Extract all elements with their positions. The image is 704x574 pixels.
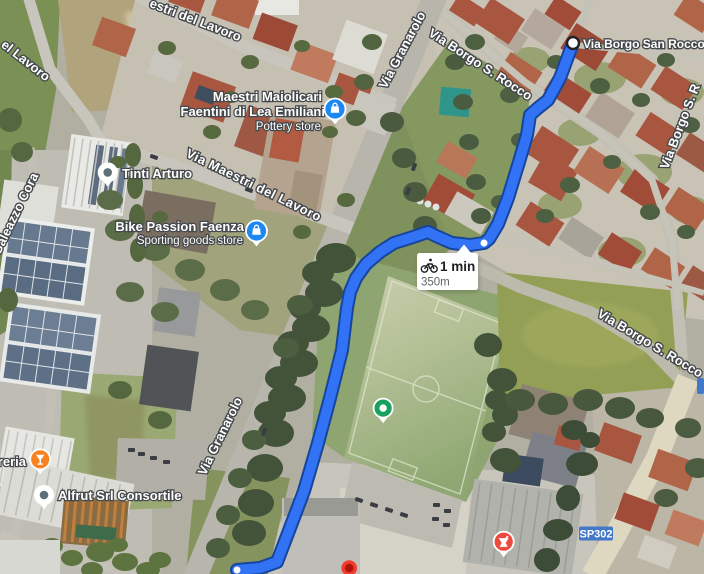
svg-text:Tinti Arturo: Tinti Arturo [122,166,192,181]
svg-text:350m: 350m [421,277,450,289]
svg-text:Faentini di Lea Emiliani: Faentini di Lea Emiliani [181,104,325,119]
svg-text:Sporting goods store: Sporting goods store [137,235,243,247]
svg-text:SP302: SP302 [579,529,612,541]
svg-text:Via Borgo San Rocco: Via Borgo San Rocco [583,37,704,51]
svg-text:Bike Passion Faenza: Bike Passion Faenza [115,219,244,234]
svg-text:reria: reria [0,454,27,469]
svg-text:1 min: 1 min [440,259,475,274]
svg-text:Maestri Maiolicari: Maestri Maiolicari [213,89,322,104]
svg-text:Pottery store: Pottery store [256,121,321,133]
svg-text:Alfrut Srl Consortile: Alfrut Srl Consortile [58,488,182,503]
